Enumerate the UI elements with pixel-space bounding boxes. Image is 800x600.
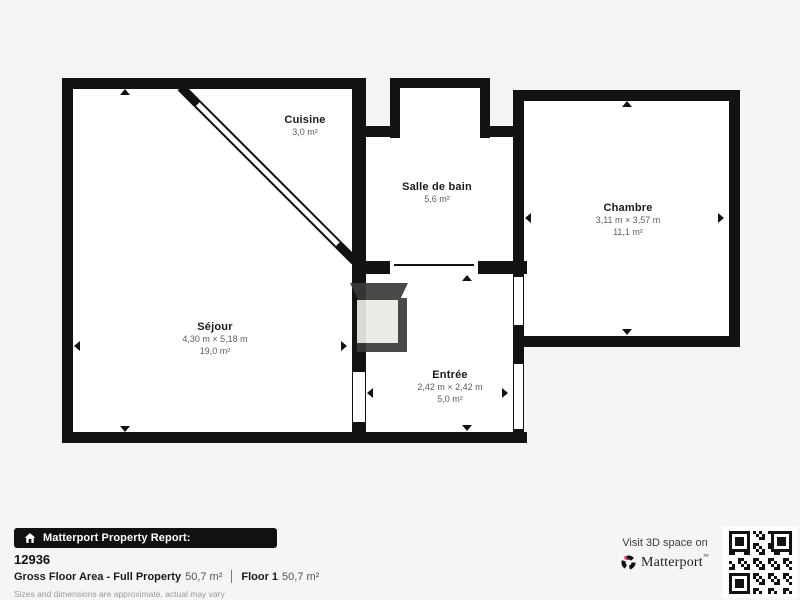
room-bathroom-nook [400, 88, 480, 138]
room-dimensions: 4,30 m × 5,18 m [182, 334, 247, 346]
room-name: Chambre [596, 201, 661, 215]
house-icon [24, 532, 36, 544]
wall-segment [62, 432, 366, 443]
report-badge: Matterport Property Report: [14, 528, 277, 548]
room-dimensions: 2,42 m × 2,42 m [417, 382, 482, 394]
room-name: Entrée [417, 368, 482, 382]
label-sejour: Séjour 4,30 m × 5,18 m 19,0 m² [182, 320, 247, 358]
label-entree: Entrée 2,42 m × 2,42 m 5,0 m² [417, 368, 482, 406]
dimension-arrow [525, 213, 531, 223]
gross-floor-label: Gross Floor Area - Full Property [14, 571, 181, 583]
room-area: 5,6 m² [402, 194, 472, 206]
dimension-arrow [718, 213, 724, 223]
room-sejour-cuisine [73, 89, 352, 432]
qr-code [722, 526, 798, 598]
room-name: Cuisine [284, 113, 325, 127]
floor-area-line: Gross Floor Area - Full Property 50,7 m²… [14, 570, 319, 583]
watermark-bottom [357, 343, 407, 352]
label-salle-de-bain: Salle de bain 5,6 m² [402, 180, 472, 206]
dimension-arrow [622, 101, 632, 107]
room-area: 3,0 m² [284, 127, 325, 139]
room-name: Séjour [182, 320, 247, 334]
property-report-page: Cuisine 3,0 m² Salle de bain 5,6 m² Cham… [0, 0, 800, 600]
room-area: 19,0 m² [182, 346, 247, 358]
visit-3d-text: Visit 3D space on [612, 537, 718, 549]
room-area: 11,1 m² [596, 227, 661, 239]
wall-segment [513, 90, 740, 101]
wall-segment [62, 78, 73, 443]
matterport-brand: Matterport™ [612, 554, 718, 571]
wall-segment [352, 126, 400, 137]
property-id: 12936 [14, 552, 50, 567]
dimension-arrow [462, 425, 472, 431]
matterport-watermark-icon [350, 281, 408, 353]
label-chambre: Chambre 3,11 m × 3,57 m 11,1 m² [596, 201, 661, 239]
wall-segment [352, 432, 527, 443]
dimension-arrow [120, 89, 130, 95]
gross-floor-value: 50,7 m² [185, 571, 222, 583]
floor-value: 50,7 m² [282, 571, 319, 583]
dimension-arrow [74, 341, 80, 351]
divider [231, 570, 232, 583]
trademark-symbol: ™ [703, 554, 709, 560]
room-name: Salle de bain [402, 180, 472, 194]
window [513, 363, 524, 430]
door-line [394, 264, 474, 266]
wall-segment [729, 90, 740, 347]
wall-segment [390, 78, 490, 88]
door-opening [513, 277, 524, 325]
door-opening [352, 372, 366, 422]
disclaimer-text: Sizes and dimensions are approximate, ac… [14, 589, 225, 599]
watermark-face [357, 300, 398, 345]
room-area: 5,0 m² [417, 394, 482, 406]
dimension-arrow [622, 329, 632, 335]
dimension-arrow [367, 388, 373, 398]
door-opening [390, 261, 478, 274]
floor-label: Floor 1 [241, 571, 278, 583]
room-dimensions: 3,11 m × 3,57 m [596, 215, 661, 227]
wall-segment [62, 78, 366, 89]
dimension-arrow [120, 426, 130, 432]
dimension-arrow [341, 341, 347, 351]
dimension-arrow [502, 388, 508, 398]
label-cuisine: Cuisine 3,0 m² [284, 113, 325, 139]
dimension-arrow [462, 275, 472, 281]
visit-3d-block: Visit 3D space on Matterport™ [612, 537, 718, 571]
wall-segment [513, 336, 740, 347]
matterport-wordmark: Matterport™ [641, 554, 709, 571]
matterport-logo-icon [621, 555, 636, 570]
report-badge-label: Matterport Property Report: [43, 532, 191, 544]
